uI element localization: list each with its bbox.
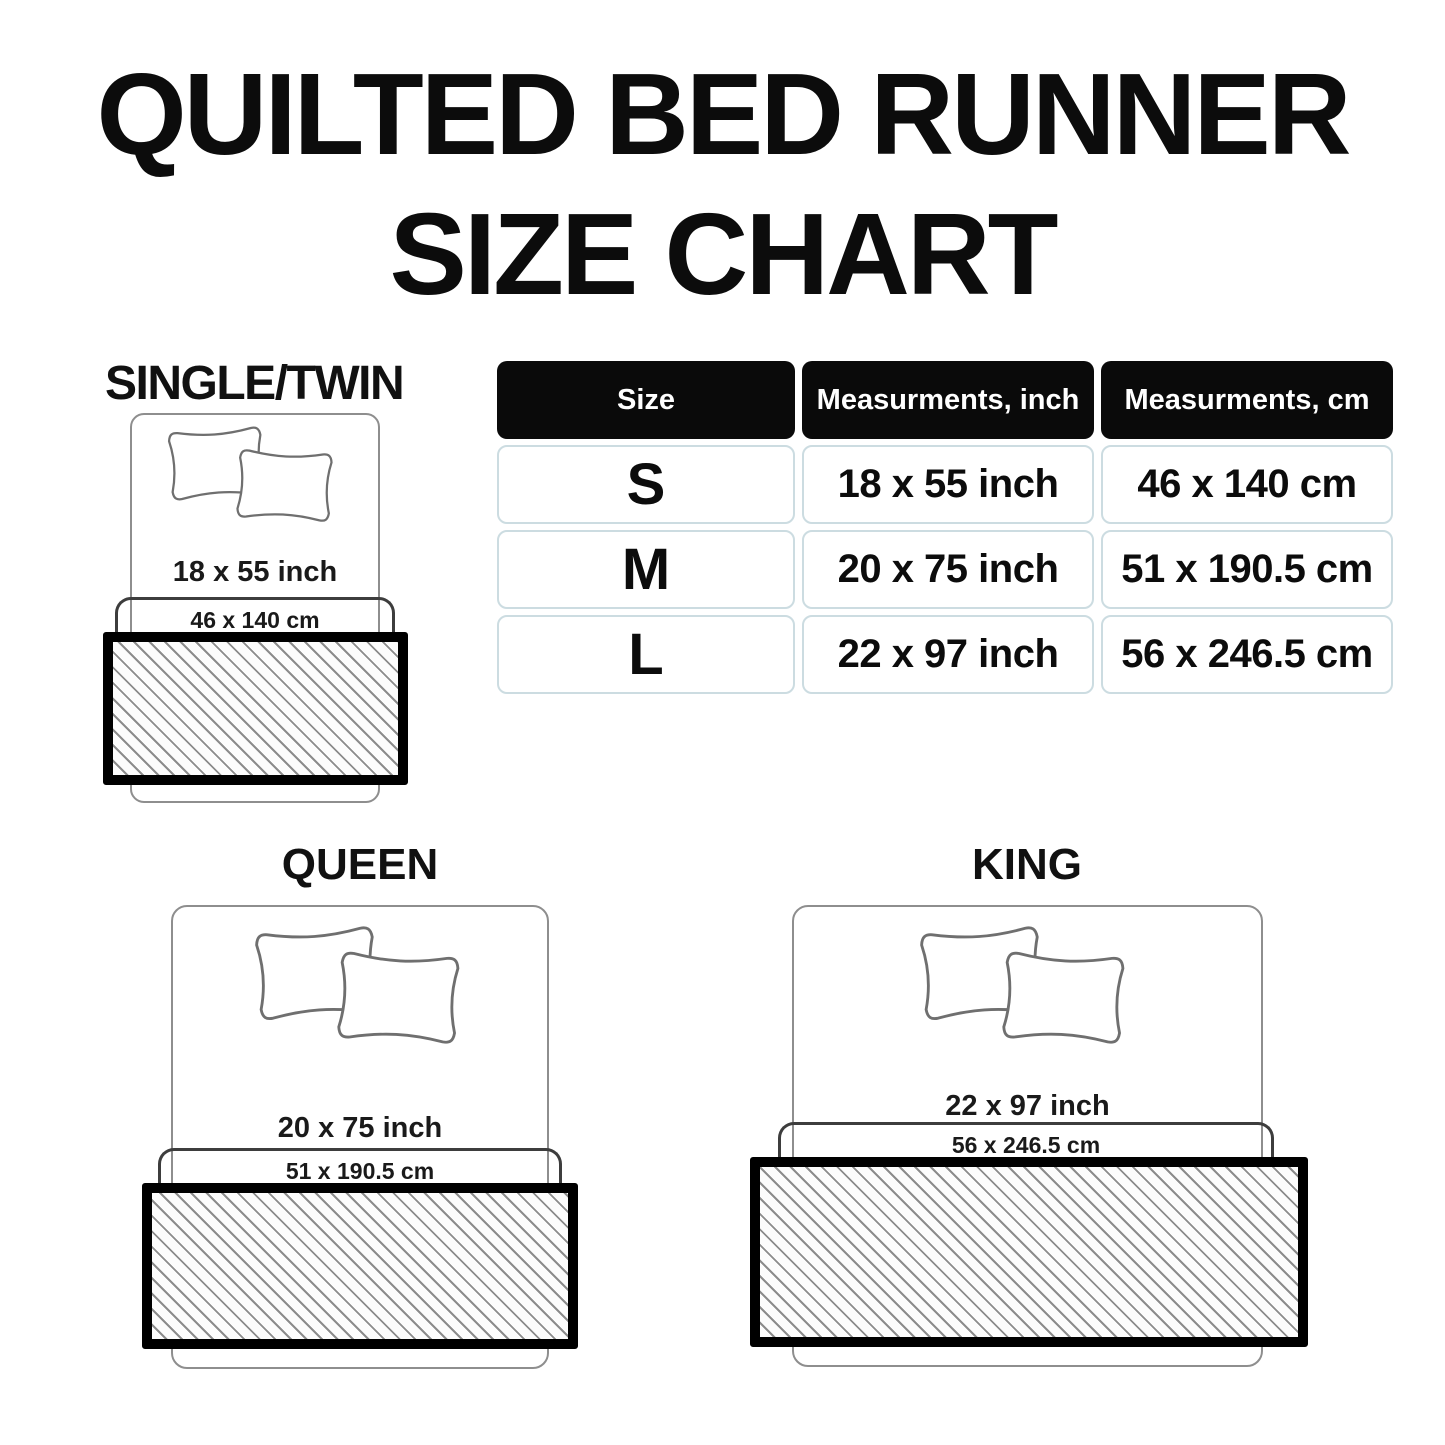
king-inch-dimension: 22 x 97 inch — [792, 1086, 1263, 1126]
table-cell-size-s: S — [497, 445, 795, 524]
king-label: KING — [877, 840, 1177, 890]
queen-runner-swatch — [142, 1183, 578, 1349]
single-inch-dimension: 18 x 55 inch — [130, 552, 380, 592]
queen-inch-dimension: 20 x 75 inch — [171, 1108, 549, 1148]
queen-pillows-icon — [240, 922, 496, 1080]
table-cell-cm-s: 46 x 140 cm — [1101, 445, 1393, 524]
table-header-cm: Measurments, cm — [1101, 361, 1393, 439]
page-title-line1: QUILTED BED RUNNER — [0, 44, 1445, 184]
table-cell-size-m: M — [497, 530, 795, 609]
king-pillows-icon — [905, 922, 1161, 1080]
table-header-inch: Measurments, inch — [802, 361, 1094, 439]
table-cell-inch-l: 22 x 97 inch — [802, 615, 1094, 694]
king-runner-swatch — [750, 1157, 1308, 1347]
table-cell-inch-m: 20 x 75 inch — [802, 530, 1094, 609]
table-header-size: Size — [497, 361, 795, 439]
table-cell-inch-s: 18 x 55 inch — [802, 445, 1094, 524]
page-title: QUILTED BED RUNNER SIZE CHART — [0, 44, 1445, 324]
single-twin-label: SINGLE/TWIN — [105, 356, 401, 411]
single-pillows-icon — [152, 420, 358, 548]
queen-label: QUEEN — [210, 840, 510, 890]
single-runner-swatch — [103, 632, 408, 785]
size-chart-page: QUILTED BED RUNNER SIZE CHART SINGLE/TWI… — [0, 0, 1445, 1445]
page-title-line2: SIZE CHART — [0, 184, 1445, 324]
table-cell-cm-m: 51 x 190.5 cm — [1101, 530, 1393, 609]
table-cell-size-l: L — [497, 615, 795, 694]
table-cell-cm-l: 56 x 246.5 cm — [1101, 615, 1393, 694]
size-table: Size Measurments, inch Measurments, cm S… — [497, 361, 1393, 694]
